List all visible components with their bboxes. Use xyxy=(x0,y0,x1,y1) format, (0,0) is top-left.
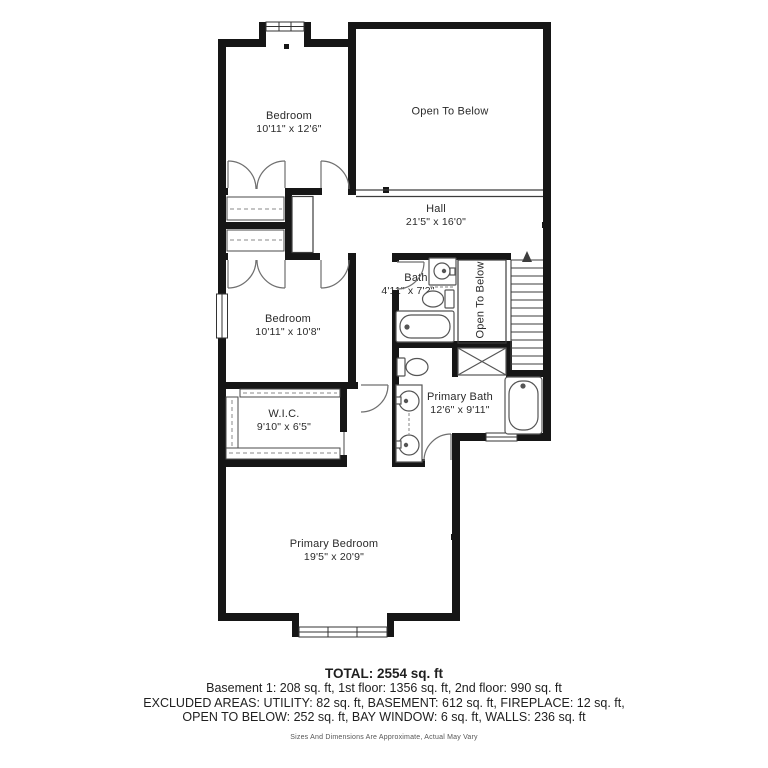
total-area-text: TOTAL: 2554 sq. ft xyxy=(0,666,768,681)
floorplan-page: Bedroom 10'11" x 12'6" Open To Below Hal… xyxy=(0,0,768,768)
chase-x-box xyxy=(458,348,506,375)
bedroom1-entry-door xyxy=(321,161,349,189)
bedroom1-closet-double-door xyxy=(228,161,285,189)
bath-sink xyxy=(429,258,456,285)
bath-toilet xyxy=(423,290,455,308)
staircase xyxy=(511,251,543,370)
primary-bath-tub xyxy=(505,377,542,434)
disclaimer-text: Sizes And Dimensions Are Approximate, Ac… xyxy=(0,734,768,741)
fixtures-group xyxy=(396,258,542,462)
primary-suite-door xyxy=(361,385,388,412)
floor-areas-text: Basement 1: 208 sq. ft, 1st floor: 1356 … xyxy=(0,681,768,696)
area-summary: TOTAL: 2554 sq. ft Basement 1: 208 sq. f… xyxy=(0,666,768,741)
primary-bath-door xyxy=(424,434,451,461)
floorplan-drawing xyxy=(0,0,768,768)
bay-window-bottom xyxy=(299,627,387,637)
bedroom2-closet-double-door xyxy=(228,260,285,288)
bay-window-top xyxy=(266,22,304,31)
excluded-areas-text-2: OPEN TO BELOW: 252 sq. ft, BAY WINDOW: 6… xyxy=(0,710,768,725)
windows-group xyxy=(217,22,518,637)
open-to-below-stairwell-outline xyxy=(458,260,506,343)
bath-door xyxy=(397,262,424,289)
excluded-areas-text-1: EXCLUDED AREAS: UTILITY: 82 sq. ft, BASE… xyxy=(0,696,768,711)
wic-shelves xyxy=(226,389,344,459)
bath-tub xyxy=(396,311,454,342)
walls-group xyxy=(218,22,551,637)
bedroom2-window xyxy=(217,294,228,338)
primary-bath-toilet xyxy=(397,358,428,376)
primary-bath-vanity xyxy=(396,385,422,462)
stairs-direction-arrow-icon xyxy=(522,251,532,262)
bedroom2-entry-door xyxy=(321,260,349,288)
